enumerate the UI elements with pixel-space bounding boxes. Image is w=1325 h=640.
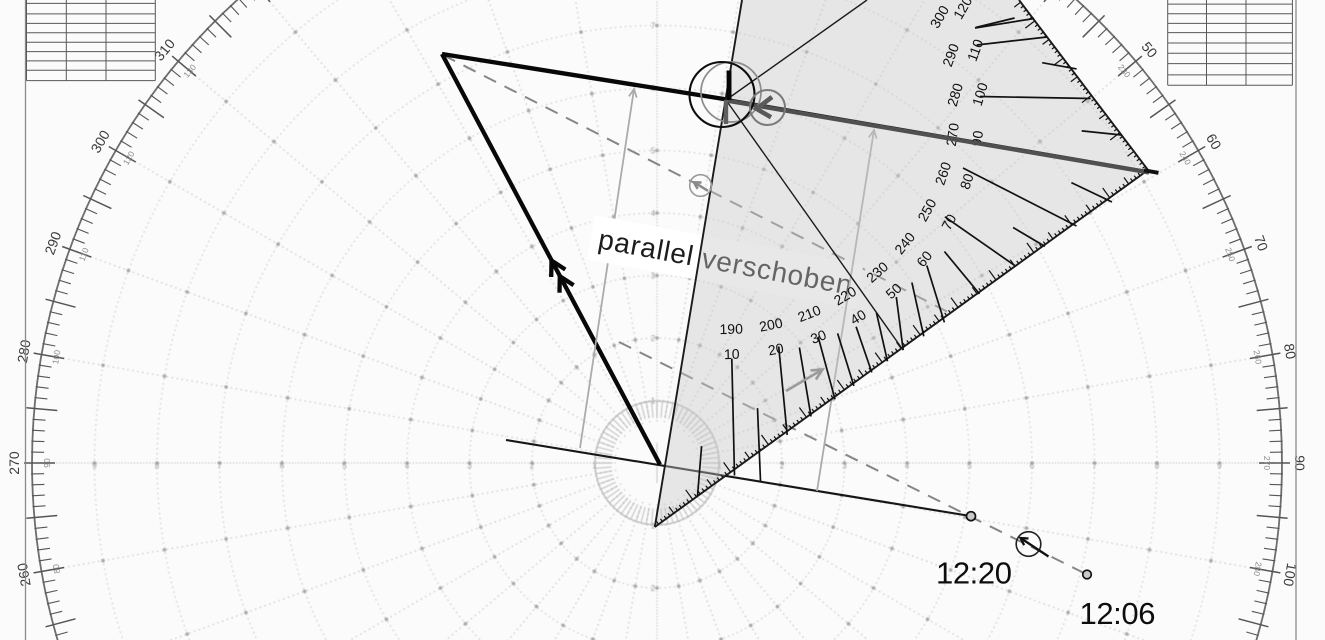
svg-text:3: 3 <box>842 462 847 471</box>
svg-text:5: 5 <box>342 462 347 471</box>
svg-text:6: 6 <box>1030 462 1035 471</box>
svg-text:4: 4 <box>405 462 410 471</box>
svg-text:7: 7 <box>1092 462 1097 471</box>
svg-text:12:06: 12:06 <box>1080 596 1156 631</box>
svg-text:20: 20 <box>767 340 786 359</box>
svg-text:80: 80 <box>51 563 63 574</box>
svg-text:6: 6 <box>280 462 285 471</box>
svg-text:2: 2 <box>651 334 656 343</box>
svg-text:9: 9 <box>92 462 97 471</box>
svg-text:3: 3 <box>651 272 656 281</box>
svg-text:2: 2 <box>530 462 535 471</box>
svg-text:9: 9 <box>1217 462 1222 471</box>
svg-text:270: 270 <box>1262 456 1272 470</box>
svg-text:8: 8 <box>1155 462 1160 471</box>
svg-text:4: 4 <box>905 462 910 471</box>
svg-text:7: 7 <box>217 462 222 471</box>
svg-text:5: 5 <box>651 147 656 156</box>
svg-text:7: 7 <box>651 22 656 31</box>
svg-text:190: 190 <box>719 321 743 338</box>
svg-text:4: 4 <box>651 209 656 218</box>
svg-text:270: 270 <box>6 451 22 475</box>
svg-text:12:20: 12:20 <box>936 556 1012 591</box>
svg-text:10: 10 <box>724 346 740 362</box>
svg-text:8: 8 <box>155 462 160 471</box>
svg-text:3: 3 <box>467 462 472 471</box>
svg-text:2: 2 <box>651 584 656 593</box>
svg-text:2: 2 <box>780 462 785 471</box>
svg-text:5: 5 <box>967 462 972 471</box>
svg-text:80: 80 <box>1281 342 1299 360</box>
svg-text:90: 90 <box>1292 455 1308 471</box>
svg-text:90: 90 <box>42 458 52 468</box>
